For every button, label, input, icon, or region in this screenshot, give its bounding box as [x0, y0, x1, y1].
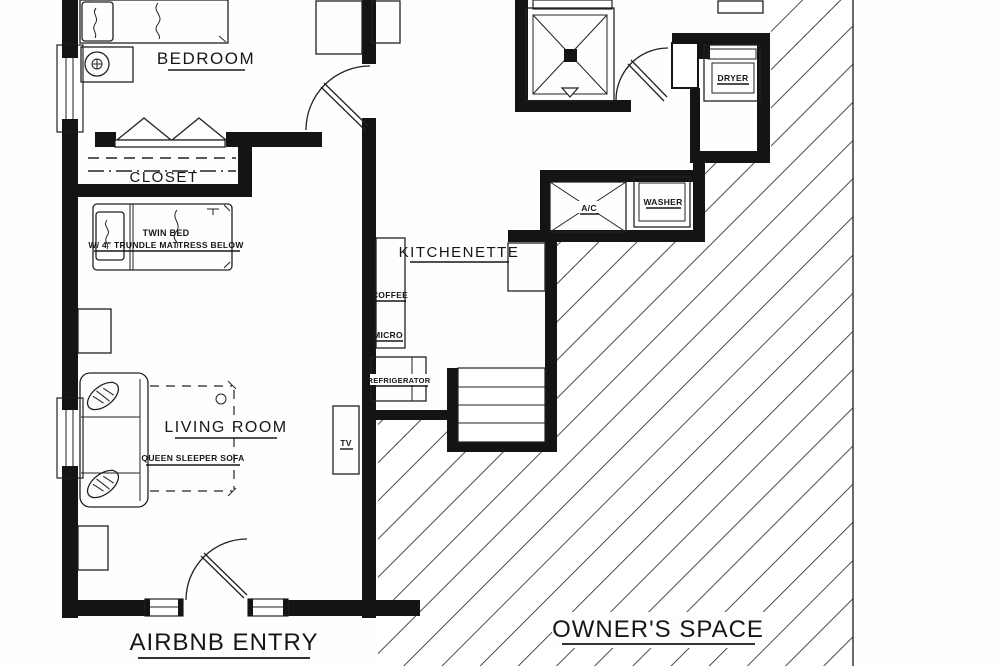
bedroom-door	[306, 66, 370, 131]
bifold-doors	[115, 118, 226, 147]
left-wall	[62, 478, 78, 618]
laundry-top-wall	[540, 170, 705, 182]
airbnb-entry-label: AIRBNB ENTRY	[130, 629, 319, 656]
refrigerator-label: REFRIGERATOR	[368, 376, 431, 385]
ac-label: A/C	[581, 203, 597, 213]
bathroom-door	[616, 48, 668, 101]
living-room-window	[57, 398, 83, 478]
upper-cabinet	[718, 1, 763, 13]
hall-cabinet	[372, 1, 400, 43]
label-bedroom: BEDROOM	[157, 49, 255, 70]
label-closet: CLOSET	[129, 169, 198, 187]
entry-bottom-wall	[62, 600, 145, 616]
entry-table	[78, 526, 108, 570]
shower	[526, 0, 614, 101]
dryer-closet-bottom-wall	[690, 151, 770, 163]
shower-head-mark	[562, 88, 578, 97]
bed-pillow	[82, 2, 113, 41]
corner-tick	[228, 488, 236, 496]
label-twin-bed: TWIN BED W/ 4" TRUNDLE MATTRESS BELOW	[88, 228, 244, 251]
queen-sofa-label: QUEEN SLEEPER SOFA	[141, 453, 244, 463]
label-airbnb-entry: AIRBNB ENTRY	[130, 629, 319, 658]
corner-tick	[224, 205, 230, 211]
left-wall	[62, 132, 78, 398]
blanket-squiggle	[156, 3, 160, 39]
closet-top-wall	[95, 132, 116, 147]
label-coffee: COFFEE	[372, 290, 408, 301]
label-owners-space: OWNER'S SPACE	[552, 612, 764, 648]
living-room-right-wall	[362, 118, 376, 618]
micro-label: MICRO	[373, 330, 403, 340]
coffee-label: COFFEE	[372, 290, 408, 300]
lamp-icon	[85, 52, 109, 76]
floor-plan-page: BEDROOM CLOSET KITCHENETTE LIVING ROOM A…	[0, 0, 1000, 666]
door-jamb	[672, 43, 698, 88]
dryer-closet-right-wall	[757, 33, 770, 163]
label-kitchenette: KITCHENETTE	[399, 244, 520, 262]
washer-label: WASHER	[643, 197, 682, 207]
corner-tick	[219, 36, 226, 42]
label-micro: MICRO	[373, 330, 403, 341]
kitchenette-label: KITCHENETTE	[399, 244, 520, 261]
entry-door	[186, 539, 247, 600]
label-living-room: LIVING ROOM	[164, 419, 287, 438]
twin-bed-label: TWIN BED	[143, 228, 190, 238]
corner-tick	[228, 381, 236, 389]
closet-top-wall	[226, 132, 322, 147]
floor-plan-drawing: BEDROOM CLOSET KITCHENETTE LIVING ROOM A…	[0, 0, 1000, 666]
kitchenette-bottom-wall	[370, 410, 447, 420]
blanket-squiggle	[94, 8, 97, 38]
hall-wall	[362, 0, 376, 64]
closet-label: CLOSET	[129, 169, 198, 186]
bedroom-label: BEDROOM	[157, 49, 255, 68]
trundle-note-label: W/ 4" TRUNDLE MATTRESS BELOW	[88, 240, 244, 250]
label-queen-sofa: QUEEN SLEEPER SOFA	[141, 453, 244, 465]
bedroom-window	[57, 45, 83, 132]
living-room-furniture	[78, 309, 359, 570]
drain	[564, 49, 577, 62]
entry-sidelight-left	[145, 599, 183, 616]
corner-tick	[224, 262, 230, 268]
sleeper-sofa	[80, 373, 148, 507]
owners-space-label: OWNER'S SPACE	[552, 616, 764, 643]
trundle-pillow	[96, 212, 124, 260]
knob-mark	[216, 394, 226, 404]
label-washer: WASHER	[643, 197, 682, 208]
stairs-bottom-wall	[447, 442, 557, 452]
label-refrigerator: REFRIGERATOR	[368, 374, 431, 386]
entry-sidelight-right	[248, 599, 288, 616]
dryer-closet-left-wall	[690, 88, 700, 151]
shower-bottom-wall	[515, 100, 631, 112]
label-dryer: DRYER	[717, 73, 749, 84]
nightstand	[81, 47, 133, 82]
side-table	[78, 309, 111, 353]
windows	[57, 45, 288, 616]
kitchenette-right-wall	[545, 242, 557, 452]
stairs	[458, 368, 545, 442]
bed	[80, 0, 228, 43]
label-ac: A/C	[577, 201, 602, 214]
entry-bottom-wall	[288, 600, 420, 616]
living-room-label: LIVING ROOM	[164, 419, 287, 436]
stairs-left-wall	[447, 368, 458, 452]
label-tv: TV	[340, 438, 353, 449]
left-wall	[62, 0, 78, 45]
dresser	[316, 1, 362, 54]
sofa-pillow	[83, 377, 124, 415]
dryer-label: DRYER	[718, 73, 749, 83]
tv-label: TV	[340, 438, 351, 448]
sofa-pillow	[83, 465, 124, 503]
